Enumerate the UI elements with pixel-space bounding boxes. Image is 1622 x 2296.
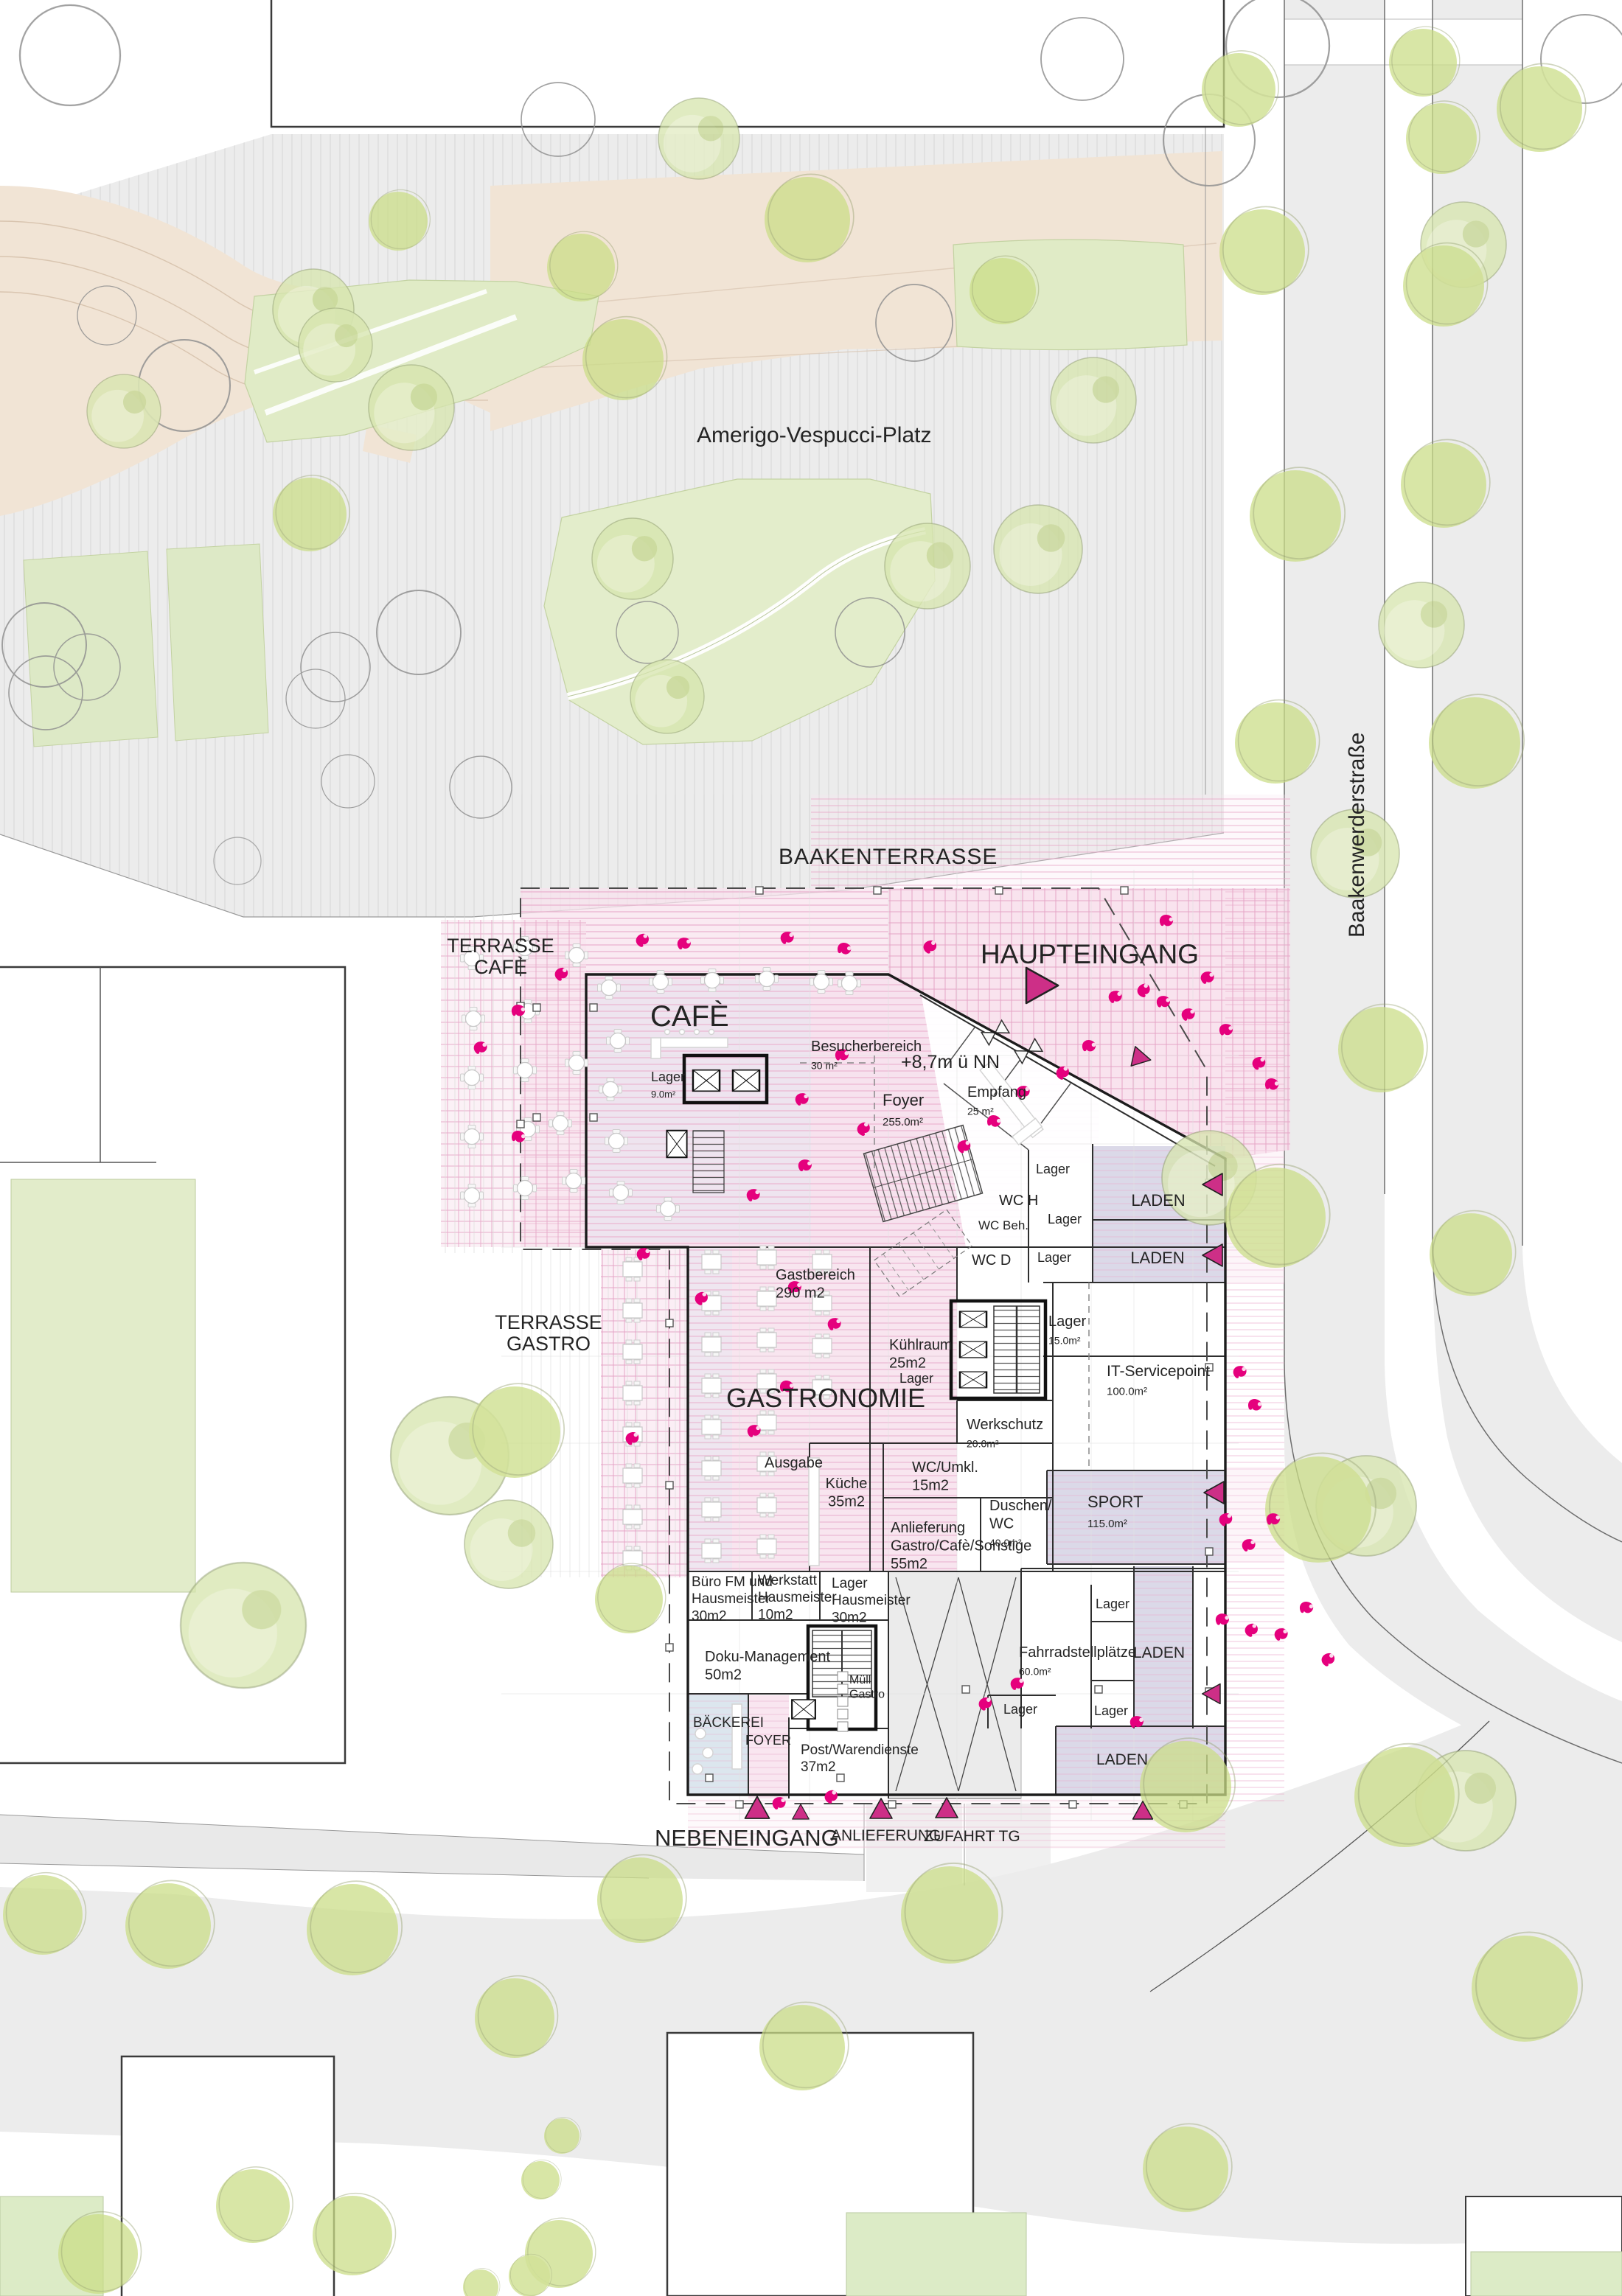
tree-icon [299, 308, 372, 382]
grid-marker [666, 1319, 673, 1327]
tree-icon [658, 98, 739, 179]
grid-marker [888, 1801, 896, 1808]
grid-marker [995, 887, 1003, 894]
grid-marker [666, 1482, 673, 1489]
tree-icon [87, 374, 161, 448]
terrace-east [1225, 888, 1284, 1804]
room-label-lager-b2: Lager [1094, 1703, 1128, 1718]
room-label-laden-2: LADEN [1130, 1249, 1184, 1267]
building-north [271, 0, 1224, 127]
elevator-icon [693, 1070, 720, 1092]
label-baakenterrasse: BAAKENTERRASSE [779, 845, 998, 869]
grid-marker [533, 1004, 540, 1011]
room-label-lager-l: Lager [1037, 1250, 1071, 1265]
label-amerigo: Amerigo-Vespucci-Platz [697, 423, 931, 447]
room-label-laden-strip: LADEN [1133, 1644, 1185, 1661]
tree-icon [885, 523, 970, 609]
room-label-wc-beh: WC Beh. [978, 1218, 1028, 1232]
grid-marker [1205, 1548, 1213, 1555]
label-zufahrt-tg: ZUFAHRT TG [924, 1828, 1020, 1845]
tree-icon [592, 518, 673, 599]
room-label-wc-h: WC H [999, 1193, 1038, 1209]
elevator-icon [960, 1372, 986, 1388]
label-haupteingang: HAUPTEINGANG [981, 939, 1199, 969]
label-plus-870: +8,7m ü NN [901, 1052, 1000, 1072]
person-icon [1298, 1599, 1315, 1616]
muell-boxes [838, 1672, 848, 1731]
tree-icon [1051, 357, 1136, 443]
room-label-lager-m: Lager [1048, 1212, 1082, 1226]
ausgabe-counter [809, 1458, 819, 1566]
label-terrasse-gastro-2: GASTRO [507, 1333, 591, 1355]
grid-marker [756, 887, 763, 894]
room-label-foyer-b: FOYER [745, 1733, 791, 1748]
building-sw [122, 2056, 334, 2296]
elevator-icon [960, 1341, 986, 1358]
tree-icon [994, 505, 1082, 593]
room-label-laden-1: LADEN [1131, 1191, 1185, 1210]
elevator-icon [666, 1131, 686, 1157]
stair-cafe-core [693, 1131, 724, 1193]
tree-icon [521, 2160, 561, 2199]
site-plan-svg: Amerigo-Vespucci-PlatzBAAKENTERRASSEHAUP… [0, 0, 1622, 2296]
grid-marker [666, 1644, 673, 1651]
tree-icon [369, 365, 454, 450]
grid-marker [874, 887, 881, 894]
grid-marker [590, 1004, 597, 1011]
tree-icon [463, 2269, 500, 2296]
grid-marker [533, 1114, 540, 1121]
grid-marker [706, 1774, 713, 1782]
room-label-lager-a: Lager [1096, 1597, 1130, 1611]
elevator-icon [960, 1311, 986, 1327]
label-street: Baakenwerderstraße [1345, 733, 1369, 938]
room-label-wc-d: WC D [972, 1252, 1011, 1269]
grid-marker [962, 1686, 970, 1693]
elevator-icon [792, 1700, 815, 1719]
label-nebeneingang: NEBENEINGANG [655, 1825, 839, 1851]
grid-marker [1069, 1801, 1076, 1808]
person-icon [1275, 1628, 1288, 1641]
room-label-lager-t: Lager [1036, 1162, 1070, 1176]
tree-icon [20, 5, 120, 105]
grid-marker [837, 1774, 844, 1782]
grid-marker [1121, 887, 1128, 894]
grid-marker [590, 1114, 597, 1121]
courtyard-s [846, 2213, 1026, 2296]
tree-icon [1379, 582, 1464, 668]
room-label-lager-b: Lager [1003, 1702, 1037, 1717]
label-terrasse-cafe-2: CAFÈ [474, 956, 527, 978]
grid-marker [517, 1120, 524, 1128]
tree-icon [464, 1500, 553, 1588]
site-plan-canvas: Amerigo-Vespucci-PlatzBAAKENTERRASSEHAUP… [0, 0, 1622, 2296]
tree-icon [630, 660, 704, 733]
room-label-laden-bottom: LADEN [1096, 1751, 1148, 1768]
room-label-baeckerei: BÄCKEREI [693, 1715, 764, 1731]
courtyard-west [11, 1179, 195, 1592]
room-label-ausgabe: Ausgabe [765, 1455, 823, 1471]
elevator-icon [733, 1070, 759, 1092]
tree-icon [181, 1563, 306, 1688]
room-label-lager-k: Lager [899, 1371, 933, 1386]
person-icon [1320, 1652, 1337, 1667]
grid-marker [1095, 1686, 1102, 1693]
label-terrasse-cafe-1: TERRASSE [447, 935, 554, 957]
label-terrasse-gastro-1: TERRASSE [495, 1311, 602, 1333]
label-cafe: CAFÈ [650, 999, 729, 1033]
label-gastronomie: GASTRONOMIE [726, 1383, 925, 1413]
grid-marker [736, 1801, 743, 1808]
